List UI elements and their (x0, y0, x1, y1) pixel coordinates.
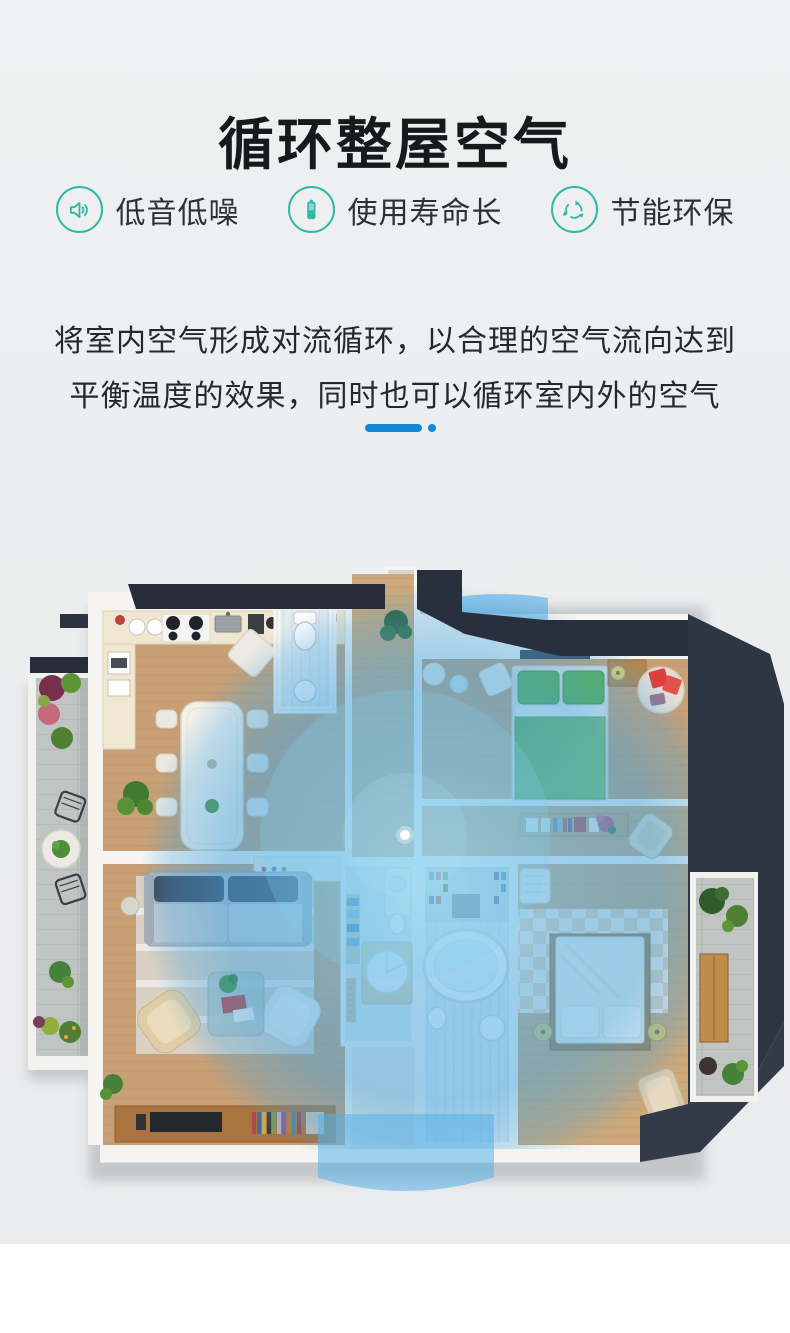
description-line-2: 平衡温度的效果，同时也可以循环室内外的空气 (0, 371, 790, 415)
page-background-bottom (0, 1244, 790, 1333)
feature-item-long-life: 使用寿命长 (288, 186, 503, 233)
floorplan-image (0, 553, 790, 1195)
page-title: 循环整屋空气 (0, 100, 790, 181)
speaker-icon (56, 186, 103, 233)
feature-item-low-noise: 低音低噪 (56, 186, 240, 233)
feature-list: 低音低噪 使用寿命长 节能环保 (0, 186, 790, 233)
divider-bar (365, 424, 422, 432)
air-circulator-device (396, 826, 414, 844)
feature-label: 节能环保 (611, 188, 735, 232)
divider-dot (428, 424, 436, 432)
description-line-1: 将室内空气形成对流循环，以合理的空气流向达到 (0, 316, 790, 360)
left-balcony (28, 670, 96, 1070)
feature-item-eco: 节能环保 (551, 186, 735, 233)
feature-label: 低音低噪 (116, 188, 240, 232)
recycle-icon (551, 186, 598, 233)
right-terrace (690, 872, 758, 1102)
battery-icon (288, 186, 335, 233)
feature-label: 使用寿命长 (348, 188, 503, 232)
section-divider (0, 424, 790, 432)
